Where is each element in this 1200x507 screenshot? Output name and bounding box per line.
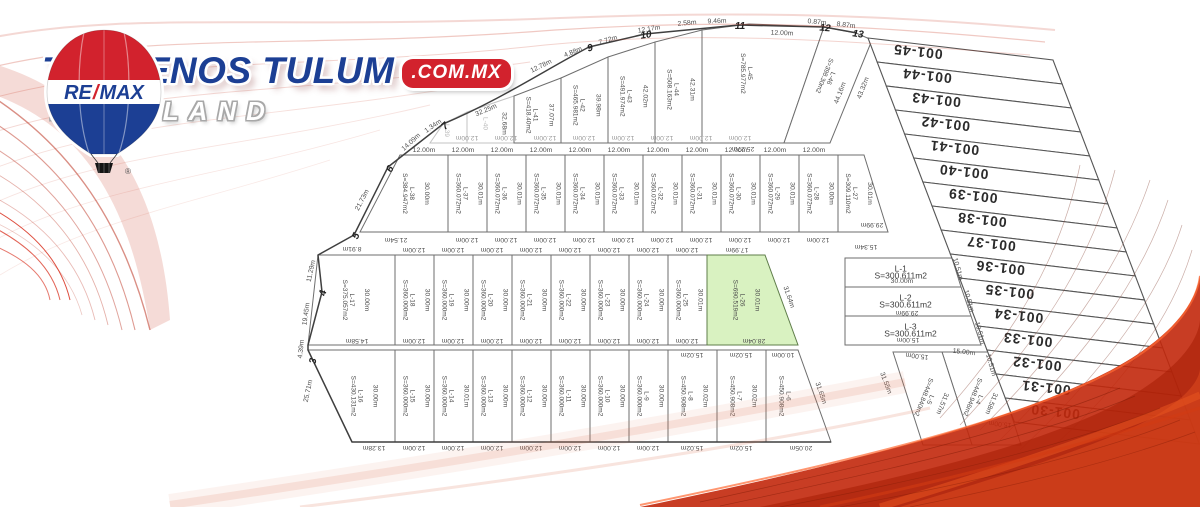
lot-depth-L-23: 30.00m — [619, 289, 626, 312]
rdim-1-8: 12.00m — [725, 147, 748, 154]
rdim-0-0: 12.00m — [455, 134, 478, 141]
lot-depth-L-19: 30.00m — [463, 289, 470, 312]
dim-0: 21.73m — [354, 188, 371, 212]
dim-25: 31.55m — [878, 371, 893, 395]
dim-37: 15.02m — [680, 351, 703, 358]
lot-depth-L-26: 30.01m — [753, 289, 760, 312]
rdim-2-6: 12.00m — [689, 236, 712, 243]
rdim-5-2: 12.00m — [480, 444, 503, 451]
lot-depth-L-34: 30.01m — [594, 182, 601, 205]
rdim-4-7: 12.00m — [675, 337, 698, 344]
rdim-0-3: 12.00m — [572, 134, 595, 141]
rdim-4-0: 12.00m — [402, 337, 425, 344]
rdim-3-7: 12.00m — [675, 246, 698, 253]
lot-depth-L-29: 30.01m — [789, 182, 796, 205]
lot-depth-L-32: 30.01m — [672, 182, 679, 205]
rdim-4-4: 12.00m — [558, 337, 581, 344]
rdim-2-0: 12.00m — [455, 236, 478, 243]
rdim-1-0: 12.00m — [413, 147, 436, 154]
rdim-5-6: 12.00m — [636, 444, 659, 451]
rdim-2-5: 12.00m — [650, 236, 673, 243]
lot-depth-L-25: 30.01m — [697, 289, 704, 312]
rdim-2-9: 12.00m — [806, 236, 829, 243]
lot-depth-L-38: 30.00m — [423, 182, 430, 205]
lot-depth-L-37: 30.01m — [477, 182, 484, 205]
lot-depth-L-13: 30.00m — [502, 385, 509, 408]
lot-depth-L-15: 30.00m — [424, 385, 431, 408]
dim-42: 17.99m — [725, 246, 748, 253]
lot-depth-L-8: 30.02m — [702, 385, 709, 408]
rdim-3-2: 12.00m — [480, 246, 503, 253]
rdim-0-5: 12.00m — [650, 134, 673, 141]
rdim-1-7: 12.00m — [686, 147, 709, 154]
rdim-1-3: 12.00m — [530, 147, 553, 154]
domain-badge: .COM.MX — [402, 59, 510, 88]
dim-16: 8.91m — [342, 245, 361, 252]
lot-depth-L-27: 30.01m — [866, 182, 873, 205]
lot-depth-L-10: 30.00m — [619, 385, 626, 408]
vertex-12: 12 — [819, 22, 831, 34]
dim-5: 4.88m — [563, 45, 583, 59]
dim-19: 29.99m — [860, 221, 883, 228]
rdim-3-5: 12.00m — [597, 246, 620, 253]
rdim-2-1: 12.00m — [494, 236, 517, 243]
flyer-canvas: L-1S=300.611m2L-2S=300.611m2L-3S=300.611… — [0, 0, 1200, 507]
rdim-0-6: 12.00m — [689, 134, 712, 141]
lot-depth-L-14: 30.01m — [463, 385, 470, 408]
rdim-5-0: 12.00m — [402, 444, 425, 451]
lot-depth-L-17: 30.00m — [363, 289, 370, 312]
rdim-0-4: 12.00m — [611, 134, 634, 141]
lot-depth-L-7: 30.02m — [751, 385, 758, 408]
dim-45: 4.39m — [297, 339, 306, 359]
brand-logo: RE/MAX ® TERRENOS TULUM.COM.MX MAYALAND — [38, 26, 511, 127]
rdim-2-2: 12.00m — [533, 236, 556, 243]
dim-38: 15.02m — [729, 351, 752, 358]
lot-depth-L-11: 30.00m — [580, 385, 587, 408]
rdim-1-6: 12.00m — [647, 147, 670, 154]
lot-depth-L-36: 30.01m — [516, 182, 523, 205]
rdim-2-4: 12.00m — [611, 236, 634, 243]
lot-dim-L-44: 42.31m — [689, 78, 696, 101]
lot-depth-L-33: 30.01m — [633, 182, 640, 205]
rdim-1-2: 12.00m — [491, 147, 514, 154]
dim-46: 25.71m — [303, 379, 315, 403]
rdim-1-10: 12.00m — [803, 147, 826, 154]
rdim-0-1: 12.00m — [494, 134, 517, 141]
dim-8: 2.58m — [677, 19, 697, 28]
lot-depth-L-35: 30.01m — [555, 182, 562, 205]
rdim-3-0: 12.00m — [402, 246, 425, 253]
rdim-1-9: 12.00m — [764, 147, 787, 154]
rdim-4-1: 12.00m — [441, 337, 464, 344]
rdim-3-1: 12.00m — [441, 246, 464, 253]
lot-depth-L-31: 30.01m — [711, 182, 718, 205]
lot-depth-L-20: 30.00m — [502, 289, 509, 312]
dim-20: 29.99m — [895, 309, 918, 316]
rdim-5-5: 12.00m — [597, 444, 620, 451]
lot-depth-L-16: 30.00m — [372, 385, 379, 408]
dim-9: 9.46m — [707, 17, 726, 25]
dim-44: 19.45m — [301, 302, 311, 326]
lot-L-26 — [707, 255, 798, 345]
dim-15: 43.32m — [856, 76, 871, 100]
vertex-9: 9 — [586, 42, 595, 54]
lot-dim-L-43: 42.02m — [642, 85, 649, 108]
rdim-2-7: 12.00m — [728, 236, 751, 243]
rdim-3-3: 12.00m — [519, 246, 542, 253]
rdim-3-4: 12.00m — [558, 246, 581, 253]
lot-depth-L-24: 30.00m — [658, 289, 665, 312]
remax-balloon-icon: RE/MAX ® — [38, 26, 170, 178]
dim-22: 15.00m — [896, 336, 919, 343]
vertex-11: 11 — [735, 21, 746, 32]
dim-6: 7.72m — [598, 34, 618, 46]
lot-depth-L-28: 30.00m — [828, 182, 835, 205]
lot-depth-L-21: 30.00m — [541, 289, 548, 312]
lot-dim-L-41: 37.07m — [548, 104, 555, 127]
rdim-0-7: 12.00m — [728, 134, 751, 141]
rdim-4-6: 12.00m — [636, 337, 659, 344]
lot-dim-L-42: 39.98m — [595, 94, 602, 117]
vertex-13: 13 — [852, 28, 865, 41]
dim-21: 30.00m — [891, 278, 914, 285]
dim-39: 10.00m — [771, 351, 794, 358]
dim-34: 15.02m — [680, 444, 703, 451]
dim-10: 12.00m — [771, 29, 794, 37]
rdim-1-4: 12.00m — [569, 147, 592, 154]
dim-35: 15.02m — [729, 444, 752, 451]
lot-depth-L-18: 30.00m — [424, 289, 431, 312]
lot-depth-L-22: 30.00m — [580, 289, 587, 312]
registered-mark: ® — [125, 167, 131, 176]
rdim-1-5: 12.00m — [608, 147, 631, 154]
dim-18: 15.34m — [854, 243, 877, 250]
dim-41: 28.04m — [742, 337, 765, 344]
vertex-10: 10 — [640, 29, 653, 42]
rdim-1-1: 12.00m — [452, 147, 475, 154]
rdim-2-8: 12.00m — [767, 236, 790, 243]
dim-4: 12.78m — [529, 58, 553, 74]
rdim-5-4: 12.00m — [558, 444, 581, 451]
rdim-5-1: 12.00m — [441, 444, 464, 451]
rdim-0-2: 12.00m — [533, 134, 556, 141]
rdim-2-3: 12.00m — [572, 236, 595, 243]
dim-36: 20.05m — [789, 444, 812, 451]
lot-depth-L-9: 30.00m — [658, 385, 665, 408]
dim-40: 14.58m — [345, 337, 368, 344]
rdim-5-3: 12.00m — [519, 444, 542, 451]
remax-wordmark: RE/MAX — [64, 82, 145, 104]
rdim-4-2: 12.00m — [480, 337, 503, 344]
rdim-3-6: 12.00m — [636, 246, 659, 253]
lot-depth-L-30: 30.01m — [750, 182, 757, 205]
rdim-4-5: 12.00m — [597, 337, 620, 344]
dim-17: 21.54m — [384, 236, 407, 243]
rdim-4-3: 12.00m — [519, 337, 542, 344]
lot-depth-L-12: 30.00m — [541, 385, 548, 408]
dim-33: 13.28m — [362, 444, 385, 451]
